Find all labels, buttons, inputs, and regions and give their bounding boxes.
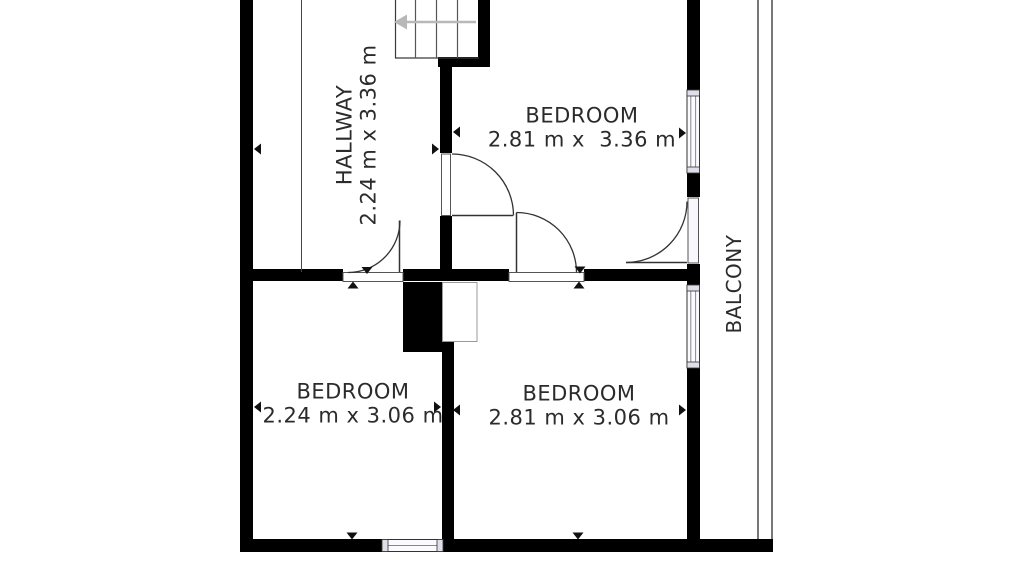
wall-right-seg1	[687, 0, 700, 90]
bedroom-top-name: BEDROOM	[488, 104, 676, 128]
wall-bedroom-divider	[442, 342, 454, 539]
dim-arrow-right-icon	[432, 144, 439, 155]
window-frame	[687, 90, 700, 173]
dim-arrow-right-icon	[679, 405, 686, 416]
wall-mid-horizontal-center	[403, 269, 509, 281]
door-swing-arc	[348, 221, 400, 273]
balcony-railing	[758, 0, 772, 539]
bedroom-top-dims: 2.81 m x 3.36 m	[488, 128, 676, 152]
dim-arrow-up-icon	[574, 282, 585, 289]
door-bedrooms-middle	[509, 213, 584, 282]
wall-mid-horizontal-right	[584, 269, 700, 281]
wall-hallway-bedroom-upper	[440, 57, 452, 153]
window-cap	[687, 285, 700, 291]
hallway-name: HALLWAY	[333, 44, 357, 225]
closet-outline	[443, 283, 478, 342]
wall-shaft-block	[403, 282, 442, 352]
window-frame	[687, 285, 700, 368]
staircase	[395, 0, 479, 58]
window-cap	[382, 540, 388, 552]
wall-bottom	[240, 539, 773, 552]
bedroom-bottom-right-label: BEDROOM 2.81 m x 3.06 m	[488, 382, 669, 431]
window-cap	[687, 362, 700, 368]
window-right-upper	[687, 90, 700, 173]
door-sill	[509, 273, 584, 282]
dim-arrow-left-icon	[453, 405, 460, 416]
bedroom-bottom-left-label: BEDROOM 2.24 m x 3.06 m	[262, 380, 443, 429]
window-cap	[437, 540, 443, 552]
dim-arrow-up-icon	[348, 282, 359, 289]
wall-right-seg4	[687, 368, 700, 539]
floor-plan: HALLWAY 2.24 m x 3.36 m BEDROOM 2.81 m x…	[0, 0, 1011, 570]
dim-arrow-left-icon	[453, 127, 460, 138]
door-balcony	[626, 198, 699, 263]
balcony-label: BALCONY	[722, 235, 746, 334]
bedroom-bottom-left-name: BEDROOM	[262, 380, 443, 404]
bedroom-bottom-right-dims: 2.81 m x 3.06 m	[488, 406, 669, 430]
interior-walls	[240, 0, 700, 539]
wall-mid-horizontal-left	[240, 269, 343, 281]
window-right-lower	[687, 285, 700, 368]
door-sill	[442, 154, 451, 216]
window-bottom	[382, 540, 443, 552]
door-sill	[343, 273, 403, 282]
bedroom-top-label: BEDROOM 2.81 m x 3.36 m	[488, 104, 676, 153]
stair-direction-arrow	[394, 15, 476, 30]
door-swing-arc	[517, 213, 577, 273]
wall-right-seg2	[687, 173, 700, 197]
bedroom-bottom-right-name: BEDROOM	[488, 382, 669, 406]
wall-hallway-bedroom-lower	[440, 216, 452, 269]
door-swing-arc	[626, 202, 687, 263]
window-cap	[687, 90, 700, 96]
floor-plan-drawing	[0, 0, 1011, 570]
window-cap	[687, 167, 700, 173]
door-hallway-south	[343, 221, 403, 282]
hallway-label: HALLWAY 2.24 m x 3.36 m	[333, 44, 382, 225]
dim-arrow-down-icon	[347, 533, 358, 540]
door-sill	[688, 198, 699, 263]
door-hallway-bedroom-top	[442, 154, 514, 216]
dim-arrow-left-icon	[254, 144, 261, 155]
dim-arrow-left-icon	[254, 402, 261, 413]
dim-arrow-down-icon	[573, 533, 584, 540]
wall-stairwell-right	[478, 0, 490, 67]
bedroom-bottom-left-dims: 2.24 m x 3.06 m	[262, 404, 443, 428]
dim-arrow-right-icon	[679, 128, 686, 139]
hallway-dims: 2.24 m x 3.36 m	[357, 44, 381, 225]
door-swing-arc	[452, 154, 514, 216]
